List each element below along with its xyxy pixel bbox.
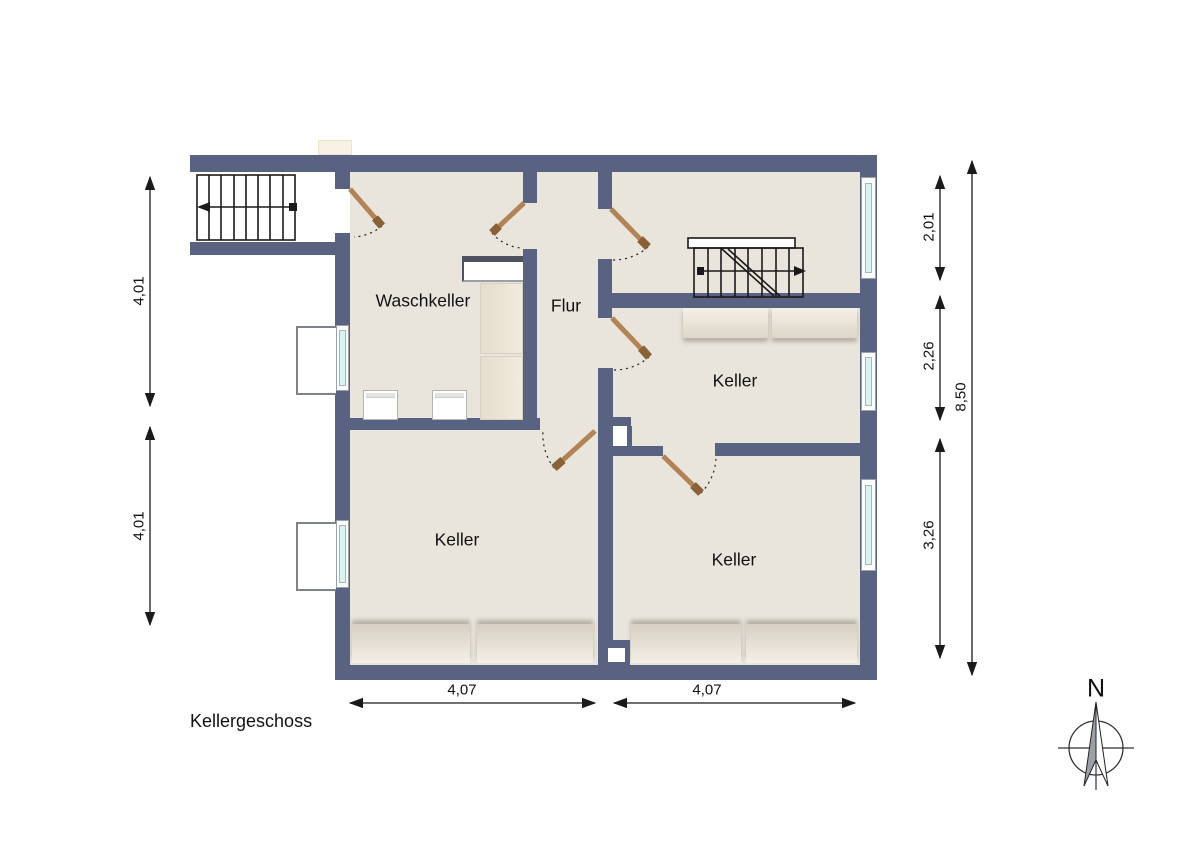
dim-right-2: 2,26 [921, 341, 938, 370]
dim-bottom-1: 4,07 [447, 682, 476, 699]
wall-divider-left [598, 446, 663, 456]
window-glass [865, 357, 872, 406]
wall-bottom [335, 665, 877, 680]
washer-panel [435, 393, 464, 398]
compass-north-label: N [1087, 675, 1105, 704]
window-glass [339, 525, 346, 583]
window-glass [865, 485, 872, 565]
wall-divider-right [715, 443, 860, 456]
wall-niche-lower [608, 648, 625, 662]
washing-machine [363, 390, 398, 420]
shelf [683, 308, 768, 338]
wall-left [335, 233, 350, 680]
light-shaft [296, 326, 336, 395]
wall-stair-enclosure [190, 242, 335, 255]
wall-flur-left [523, 249, 537, 418]
room-label-keller-rechts: Keller [712, 550, 757, 571]
wall-flur-right-mid [598, 259, 612, 318]
wall-central [598, 368, 613, 665]
wall-stairroom-bottom [612, 293, 860, 308]
cabinet [480, 283, 523, 354]
dim-right-total: 8,50 [953, 382, 970, 411]
wall-flur-right-stub [598, 172, 612, 209]
shelf [772, 308, 857, 338]
room-label-flur: Flur [551, 296, 581, 317]
window-glass [339, 330, 346, 386]
dim-bottom-2: 4,07 [692, 682, 721, 699]
compass-icon [1058, 702, 1134, 790]
wall-left-door-stub [335, 172, 350, 189]
wall-flur-left-stub [523, 172, 537, 203]
dim-right-3: 3,26 [921, 520, 938, 549]
window-glass [865, 183, 872, 273]
dim-left-2: 4,01 [131, 511, 148, 540]
light-shaft [296, 522, 336, 591]
washing-machine [432, 390, 467, 420]
shelf [352, 624, 470, 663]
dim-left-1: 4,01 [131, 276, 148, 305]
cabinet [480, 356, 523, 420]
chimney-block [318, 140, 352, 155]
dim-right-1: 2,01 [921, 212, 938, 241]
washer-panel [366, 393, 395, 398]
shelf [746, 624, 857, 663]
exterior-stairs-icon [197, 175, 297, 240]
room-label-keller-mitte: Keller [713, 371, 758, 392]
wall-top [190, 155, 877, 172]
wall-niche-cap-right [627, 426, 632, 446]
shelf [631, 624, 741, 663]
room-label-keller-links: Keller [435, 530, 480, 551]
wall-niche-upper [613, 426, 627, 446]
wall-niche-cap-top [598, 417, 631, 426]
shelf [477, 624, 593, 663]
workbench [462, 256, 523, 282]
room-label-waschkeller: Waschkeller [376, 291, 471, 312]
floorplan-canvas: Waschkeller Flur Keller Keller Keller 4,… [0, 0, 1200, 848]
page-title: Kellergeschoss [190, 711, 312, 732]
